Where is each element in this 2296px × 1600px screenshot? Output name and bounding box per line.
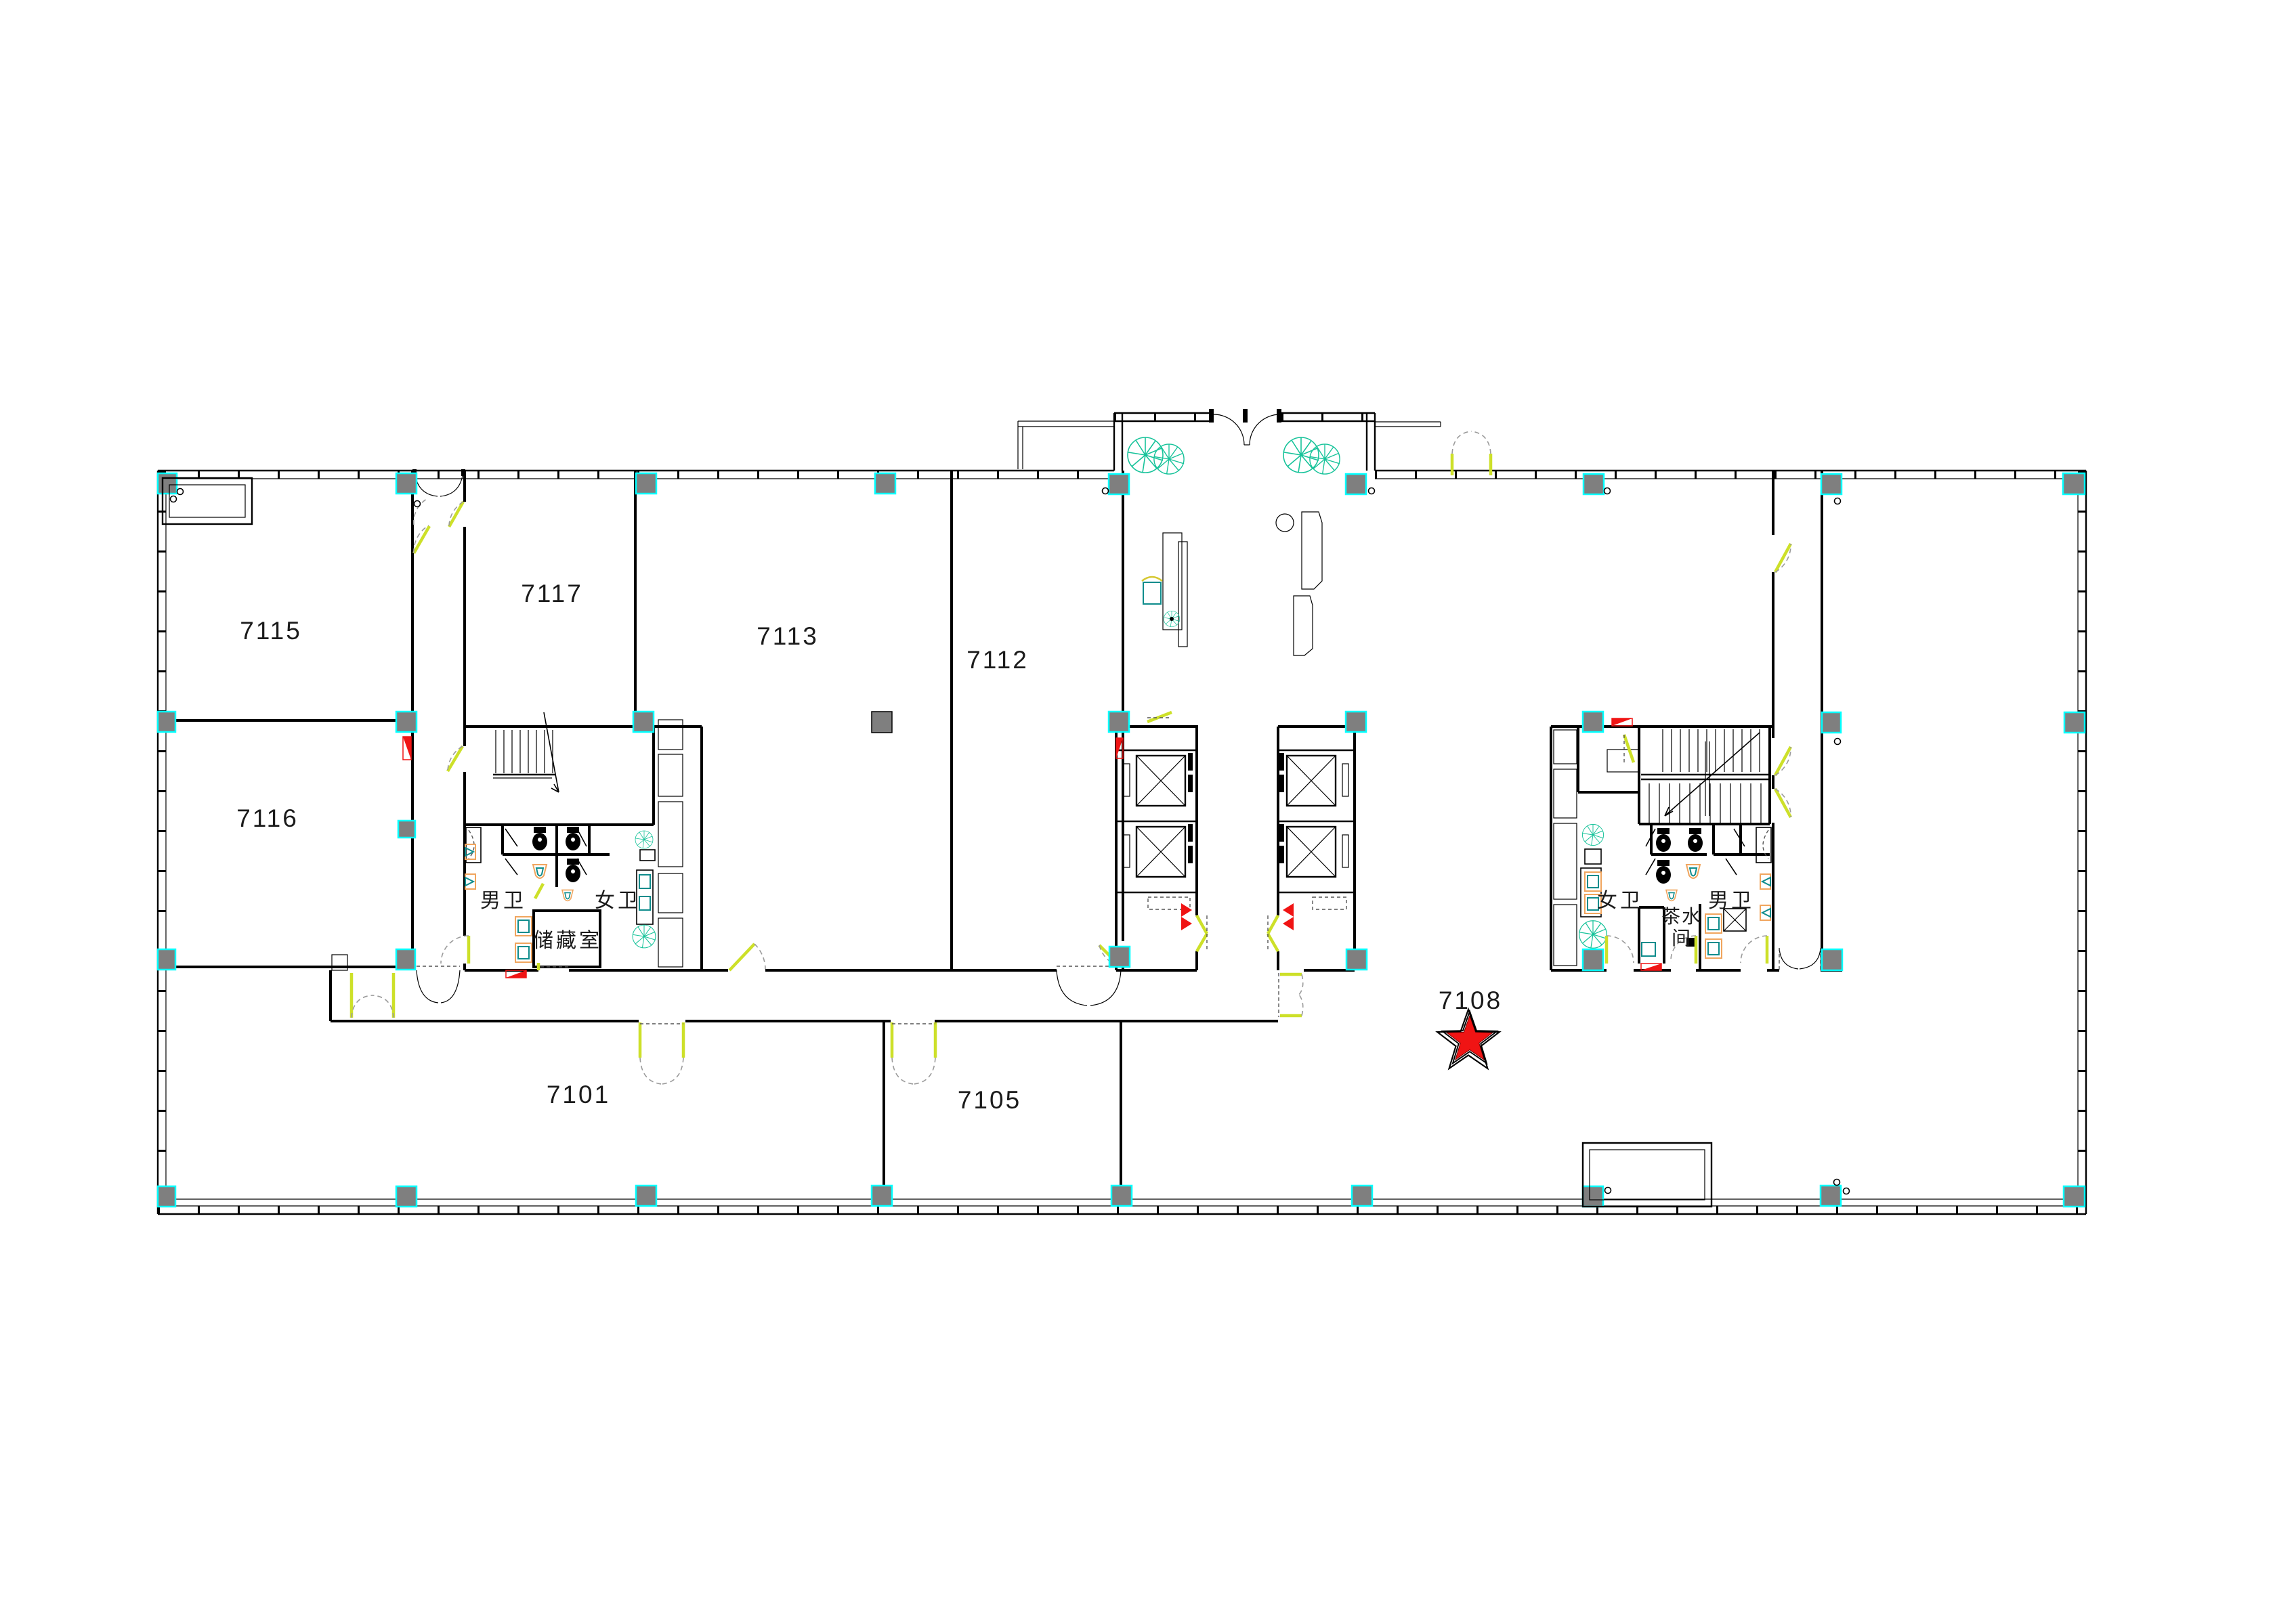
label-female-wc-east: 女卫	[1597, 884, 1643, 913]
toilet-icon	[1656, 828, 1671, 852]
urinal-icon	[533, 865, 547, 878]
label-male-wc-east: 男卫	[1708, 884, 1754, 913]
wall-urinal-icon	[465, 844, 475, 859]
wall-urinal-icon	[465, 874, 475, 889]
mop-basin	[1756, 827, 1771, 863]
label-female-wc-west: 女卫	[595, 884, 641, 913]
stair-east	[1607, 727, 1770, 824]
door-room7105	[892, 1022, 935, 1084]
canopy-left	[1018, 421, 1114, 469]
room-label-7105: 7105	[958, 1086, 1021, 1115]
entrance-lobby	[1018, 409, 1441, 655]
lobby-plants	[1128, 437, 1340, 474]
sink-icon	[515, 917, 532, 936]
toilet-icon	[1656, 860, 1671, 884]
stair-west	[493, 712, 559, 792]
door-core-east-room	[1624, 735, 1634, 762]
plant-icon	[1579, 921, 1607, 949]
lobby-counters	[1276, 512, 1322, 655]
door-room7113	[729, 944, 765, 970]
door-male-wc-west	[441, 936, 469, 964]
door-stair-west	[448, 746, 463, 771]
urinal-icon	[1666, 890, 1677, 901]
door-corridor-west	[352, 973, 394, 1018]
door-room7101	[640, 1022, 683, 1084]
door-female-wc-east	[1607, 936, 1634, 964]
door-swing-7112-corridor	[1057, 966, 1121, 1006]
duct-shafts	[1554, 730, 1577, 966]
door-top-wall-east	[1452, 431, 1491, 475]
door-strip-upper	[1775, 544, 1791, 572]
step-marker	[1612, 718, 1632, 726]
toilet-icon	[566, 859, 580, 882]
elevator-core	[1116, 712, 1355, 1017]
room-label-7116: 7116	[236, 804, 299, 833]
plant-icon	[633, 925, 656, 948]
door-strip-swing	[1779, 948, 1821, 970]
room-label-7113: 7113	[757, 622, 819, 651]
step-marker	[1641, 964, 1661, 970]
label-tea-room-line2: 间	[1672, 924, 1692, 951]
label-male-wc-west: 男卫	[480, 884, 526, 913]
entrance-double-door	[1209, 409, 1281, 445]
reception-desk	[1142, 533, 1187, 647]
label-storage-room: 储藏室	[533, 924, 602, 953]
floor-drain	[1585, 849, 1601, 864]
door-male-wc-east	[1741, 936, 1767, 964]
room-label-7115: 7115	[240, 617, 302, 645]
room-label-7101: 7101	[547, 1081, 610, 1109]
star-icon	[1437, 1010, 1500, 1068]
plant-icon	[635, 831, 653, 848]
urinal-icon	[562, 890, 573, 901]
hall-south-door	[1279, 973, 1303, 1017]
toilet-icon	[1688, 828, 1703, 852]
door-inner-west	[535, 884, 543, 899]
door-strip-stair-b	[1775, 789, 1791, 817]
elevator-car	[1124, 753, 1193, 806]
toilet-icon	[566, 827, 580, 850]
tea-sink	[1642, 943, 1655, 956]
elevator-car	[1124, 824, 1193, 877]
plant-icon	[1582, 824, 1603, 845]
room-label-7108: 7108	[1439, 987, 1502, 1015]
doors	[352, 431, 1821, 1084]
wall-urinal-icon	[1760, 905, 1770, 920]
elevator-car	[1279, 824, 1348, 877]
door-strip-stair-a	[1775, 747, 1791, 775]
toilet-icon	[532, 827, 547, 850]
room-label-7112: 7112	[966, 646, 1029, 674]
elevator-car	[1279, 753, 1348, 806]
chair	[1143, 582, 1161, 604]
floor-drain	[640, 850, 655, 861]
door-room7117	[449, 502, 463, 527]
sink-icon	[1705, 914, 1722, 933]
step-marker	[403, 737, 411, 760]
wall-urinal-icon	[1760, 874, 1770, 889]
room-label-7117: 7117	[521, 580, 583, 608]
sink-icon	[1705, 939, 1722, 958]
free-column	[872, 712, 892, 733]
duct-shafts	[658, 720, 683, 967]
door-branch-swing	[417, 966, 460, 1003]
floor-plan-drawing	[0, 0, 2296, 1600]
canopy-right	[1375, 422, 1441, 427]
urinal-icon	[1686, 865, 1700, 878]
floor-plan-canvas: 7115 7116 7117 7113 7112 7101 7105 7108 …	[0, 0, 2296, 1600]
sink-icon	[515, 943, 532, 962]
